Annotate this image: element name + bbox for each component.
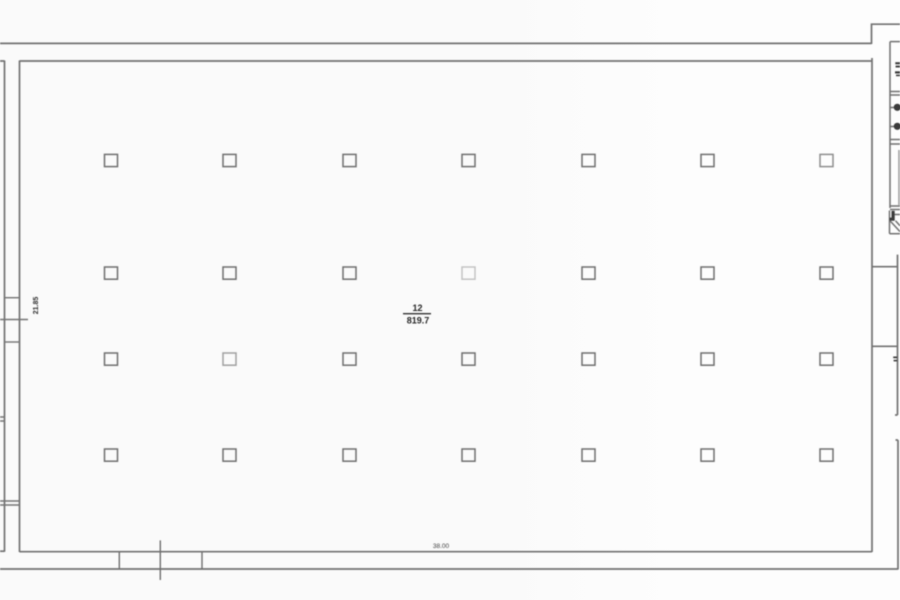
svg-text:38.00: 38.00: [433, 543, 450, 550]
svg-text:12: 12: [412, 303, 422, 313]
svg-text:21.85: 21.85: [33, 297, 40, 315]
svg-text:819.7: 819.7: [407, 316, 430, 326]
